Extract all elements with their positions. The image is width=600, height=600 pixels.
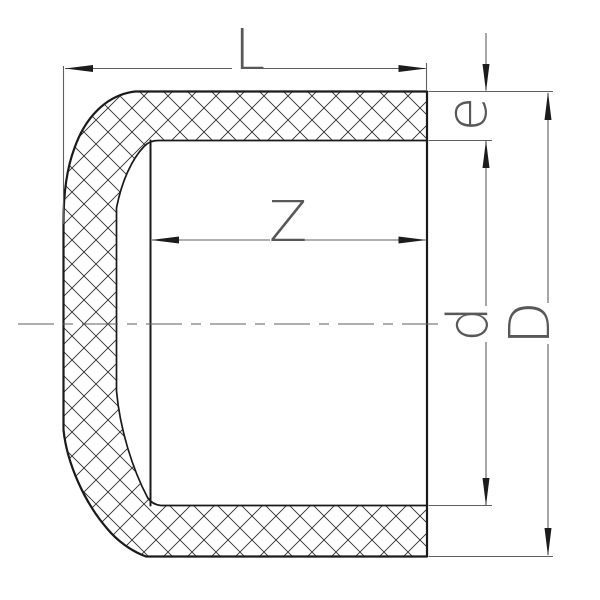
arrow-D-up <box>545 92 552 120</box>
label-wall-thickness: e <box>435 97 500 131</box>
arrow-d-down <box>483 478 490 506</box>
arrow-e-down <box>483 64 490 92</box>
technical-drawing-canvas: L Z e d D <box>0 0 600 600</box>
label-overall-length: L <box>234 18 265 83</box>
label-outer-diameter: D <box>498 301 563 344</box>
arrow-Z-right <box>399 237 427 244</box>
arrow-D-down <box>545 528 552 556</box>
arrow-L-right <box>399 65 427 72</box>
arrow-L-left <box>65 65 93 72</box>
arrow-Z-left <box>151 237 179 244</box>
end-cap-diagram: L Z e d D <box>0 0 600 600</box>
arrow-d-up <box>483 141 490 169</box>
label-socket-depth: Z <box>269 190 307 255</box>
label-inner-diameter: d <box>436 306 501 342</box>
